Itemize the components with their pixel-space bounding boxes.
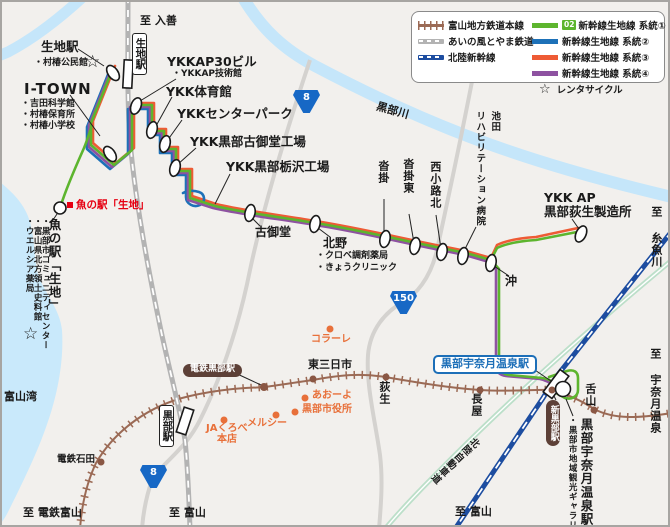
route-8-shield-south: 8 — [140, 465, 167, 488]
hokuriku-expressway-label: 北陸自動車道 — [428, 434, 481, 484]
kurobe-river-label: 黒部川 — [375, 101, 410, 122]
ainokaze-line-swatch — [418, 39, 444, 44]
oki-stop-label: 沖 — [505, 275, 517, 288]
legend-item-route-1: 02新幹線生地線 系統① — [532, 17, 662, 33]
kurobe-unazuki-box: 黒部宇奈月温泉駅 — [433, 355, 537, 374]
ykkap-gijutsukan-label: ・YKKAP技術館 — [172, 70, 242, 80]
kutsukake-higashi-label: 沓掛東 — [402, 158, 414, 194]
ykk-center-park-label: YKKセンターパーク — [177, 107, 293, 121]
ikuji-bus-stop-label: 生地駅 — [41, 40, 79, 54]
shin-kurobe-badge: 新黒部駅 — [546, 400, 560, 446]
aoyo-label: あおーよ — [312, 391, 352, 402]
star-icon: ☆ — [539, 82, 551, 97]
legend-route-column: 02新幹線生地線 系統①新幹線生地線 系統②新幹線生地線 系統③新幹線生地線 系… — [532, 17, 662, 97]
ykkap30-label: YKKAP30ビル — [167, 55, 257, 69]
shitayama-label: 舌山 — [584, 383, 596, 407]
route-4-swatch — [532, 71, 558, 76]
ikeda-hospital-label-2: リハビリテーション病院 — [474, 111, 484, 227]
ykk-komido-kojo-label: YKK黒部古御堂工場 — [190, 135, 306, 149]
to-itoigawa-label: 至 糸魚川 — [650, 206, 662, 268]
legend-item-rental-cycle: ☆ レンタサイクル — [532, 81, 662, 97]
legend-label: 新幹線生地線 系統③ — [562, 50, 649, 64]
legend-label: あいの風とやま鉄道 — [448, 34, 534, 48]
ikeda-hospital-label-1: 池田 — [489, 111, 499, 132]
ykk-ap-label-2: 黒部荻生製造所 — [544, 205, 632, 219]
muratsubaki-shogakko-label: ・村椿小学校 — [21, 122, 75, 132]
route-1-swatch — [532, 23, 558, 28]
legend-item-ainokaze: あいの風とやま鉄道 — [418, 33, 536, 49]
muratsubaki-hoiku-label: ・村椿保育所 — [21, 111, 75, 121]
toyama-bay-label: 富山湾 — [4, 391, 37, 403]
legend-label: 北陸新幹線 — [448, 50, 496, 64]
kanko-gallery-label: ・黒部市地域観光ギャラリー — [567, 416, 576, 527]
to-nyuzen-label: 至 入善 — [140, 15, 177, 27]
legend-label: 新幹線生地線 系統② — [562, 34, 649, 48]
kutsukake-label: 沓掛 — [377, 160, 389, 184]
kurobe-cityhall-label: 黒部市役所 — [302, 405, 352, 416]
route-2-swatch — [532, 39, 558, 44]
legend-item-route-2: 新幹線生地線 系統② — [532, 33, 662, 49]
mercy-label: メルシー — [247, 419, 287, 430]
dentetsu-ishida-label: 電鉄石田 — [57, 455, 95, 465]
kurobe-sta-box: 黒部駅 — [159, 405, 174, 447]
rental-cycle-star-kominkan: ☆ — [85, 54, 100, 71]
legend-label: 新幹線生地線 系統① — [578, 18, 665, 32]
bus-route-map: 至 入善生地駅・村椿公民館I-TOWN・吉田科学館・村椿保育所・村椿小学校生地駅… — [0, 0, 670, 527]
route-8-shield-north: 8 — [293, 90, 320, 113]
ykk-ap-label-1: YKK AP — [544, 191, 596, 205]
ykk-tochizawa-kojo-label: YKK黒部栃沢工場 — [226, 160, 329, 174]
route-3-swatch — [532, 55, 558, 60]
colare-label: コラーレ — [311, 335, 351, 346]
legend-item-route-3: 新幹線生地線 系統③ — [532, 49, 662, 65]
kurobe-pharmacy-label: ・クロベ調剤薬局 — [316, 252, 388, 262]
legend: 富山地方鉄道本線 あいの風とやま鉄道 北陸新幹線 02新幹線生地線 系統①新幹線… — [411, 11, 665, 83]
rental-cycle-star-uonoeki: ☆ — [23, 326, 38, 343]
legend-rail-column: 富山地方鉄道本線 あいの風とやま鉄道 北陸新幹線 — [418, 17, 536, 65]
legend-label: 富山地方鉄道本線 — [448, 18, 524, 32]
to-dentetsu-toyama-label: 至 電鉄富山 — [23, 507, 82, 519]
shinkansen-line-swatch — [418, 55, 444, 60]
nagaya-label: 長屋 — [470, 393, 482, 417]
to-toyama-shinkansen-label: 至 富山 — [455, 506, 492, 518]
ykk-taiikukan-label: YKK体育館 — [166, 85, 232, 99]
chitetsu-line-swatch — [418, 21, 444, 30]
kyo-clinic-label: ・きょうクリニック — [316, 264, 397, 274]
dentetsu-kurobe-badge: 電鉄黒部駅 — [183, 364, 242, 377]
ja-kurobe-label-2: 本店 — [217, 435, 237, 446]
nishikoji-kita-label: 西小路北 — [429, 161, 441, 209]
higashi-mikkaichi-label: 東三日市 — [308, 359, 352, 371]
legend-item-route-4: 新幹線生地線 系統④ — [532, 65, 662, 81]
kitano-stop-label: 北野 — [323, 237, 347, 250]
ogyu-label: 荻生 — [378, 381, 390, 405]
route-number-badge: 02 — [562, 20, 576, 30]
yoshida-science-label: ・吉田科学館 — [21, 100, 75, 110]
ikuji-rail-station-box: 生地駅 — [132, 33, 147, 75]
muratsubaki-kominkan-label: ・村椿公民館 — [34, 59, 88, 69]
uonoeki-poi-label: 魚の駅「生地」 — [76, 200, 150, 211]
legend-label: 新幹線生地線 系統④ — [562, 66, 649, 80]
route-150-shield: 150 — [390, 291, 417, 314]
legend-item-shinkansen: 北陸新幹線 — [418, 49, 536, 65]
legend-label: レンタサイクル — [557, 82, 623, 96]
i-town-label: I-TOWN — [24, 81, 92, 97]
komido-stop-label: 古御堂 — [255, 226, 291, 239]
kurobe-unazuki-vert-label: 黒部宇奈月温泉駅 — [579, 418, 593, 526]
to-unazuki-label: 至 宇奈月温泉 — [649, 348, 661, 434]
welcia-label: ・ウエルシア薬局 — [24, 217, 33, 293]
legend-item-chitetsu: 富山地方鉄道本線 — [418, 17, 536, 33]
to-toyama-ainokaze-label: 至 富山 — [169, 507, 206, 519]
